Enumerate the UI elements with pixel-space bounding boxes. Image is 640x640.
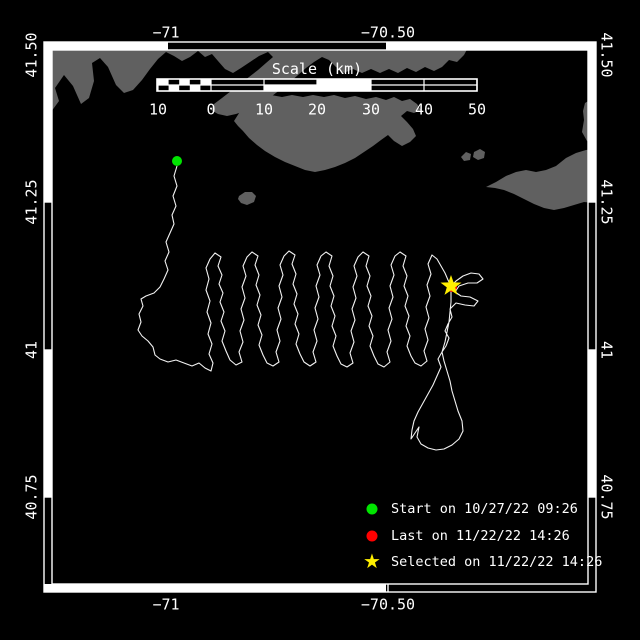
scalebar-checker-cell bbox=[190, 85, 201, 91]
axis-label-lat-left: 41 bbox=[25, 341, 40, 359]
scalebar-tick-label: 20 bbox=[308, 103, 326, 118]
frame-solid-segment bbox=[386, 42, 596, 50]
legend-last-dot-icon bbox=[367, 531, 378, 542]
axis-label-lat-right: 40.75 bbox=[599, 474, 614, 519]
scalebar-tick-label: 0 bbox=[206, 103, 215, 118]
scalebar-checker-cell bbox=[169, 85, 180, 91]
axis-label-lat-left: 40.75 bbox=[25, 474, 40, 519]
legend-item-label: Last on 11/22/22 14:26 bbox=[391, 528, 570, 544]
land-polygon bbox=[461, 152, 471, 161]
axis-label-lon-bottom: −71 bbox=[152, 598, 179, 613]
axis-label-lat-left: 41.50 bbox=[25, 32, 40, 77]
start-marker bbox=[172, 156, 182, 166]
scalebar-tick-label: 10 bbox=[149, 103, 167, 118]
axis-label-lat-right: 41.25 bbox=[599, 179, 614, 224]
scalebar-tick-label: 10 bbox=[255, 103, 273, 118]
track-line bbox=[138, 166, 483, 450]
map-canvas bbox=[0, 0, 640, 640]
frame-solid-segment bbox=[44, 350, 52, 497]
frame-solid-segment bbox=[588, 42, 596, 202]
axis-label-lon-top: −70.50 bbox=[361, 26, 415, 41]
axis-label-lon-top: −71 bbox=[152, 26, 179, 41]
frame-solid-segment bbox=[588, 350, 596, 497]
axis-label-lat-right: 41.50 bbox=[599, 32, 614, 77]
scalebar-checker-cell bbox=[158, 79, 169, 85]
axis-label-lon-bottom: −70.50 bbox=[361, 598, 415, 613]
axis-label-lat-left: 41.25 bbox=[25, 179, 40, 224]
axis-label-lat-right: 41 bbox=[599, 341, 614, 359]
legend-selected-star-icon: ★ bbox=[363, 551, 381, 571]
scalebar bbox=[157, 79, 477, 91]
scalebar-checker-cell bbox=[200, 79, 211, 85]
legend-item-label: Selected on 11/22/22 14:26 bbox=[391, 554, 602, 570]
frame-solid-segment bbox=[44, 584, 386, 592]
land-polygon bbox=[473, 149, 485, 160]
scalebar-title: Scale (km) bbox=[272, 60, 362, 78]
map-figure: −71−70.50−71−70.5041.5041.254140.7541.50… bbox=[0, 0, 640, 640]
frame-solid-segment bbox=[44, 42, 168, 50]
legend-start-dot-icon bbox=[367, 504, 378, 515]
scalebar-checker-cell bbox=[179, 79, 190, 85]
scalebar-tick-label: 30 bbox=[362, 103, 380, 118]
scalebar-segment bbox=[264, 85, 317, 91]
scalebar-tick-label: 50 bbox=[468, 103, 486, 118]
land-polygon bbox=[486, 149, 596, 210]
frame-solid-segment bbox=[44, 42, 52, 202]
land-polygon bbox=[238, 192, 256, 205]
scalebar-tick-label: 40 bbox=[415, 103, 433, 118]
legend-item-label: Start on 10/27/22 09:26 bbox=[391, 501, 578, 517]
